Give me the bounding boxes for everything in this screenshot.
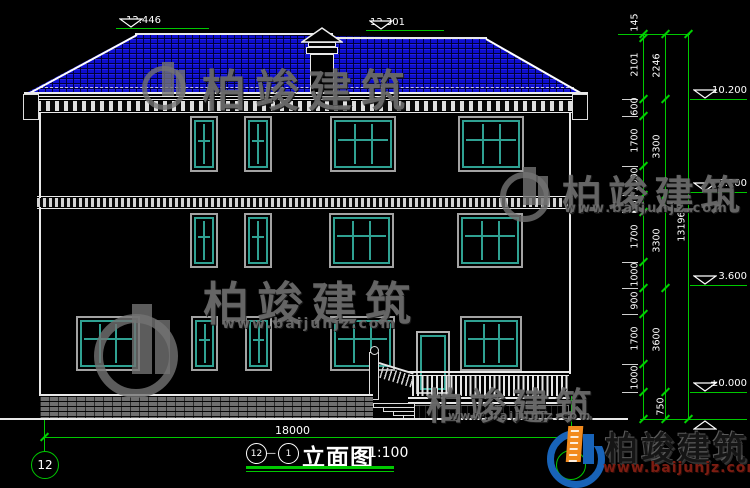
drawing-scale: 1:100 (368, 445, 408, 461)
dimension-label: 900 (630, 281, 641, 321)
elevation-value: 3.600 (667, 271, 747, 282)
roof-ridge-right (331, 37, 487, 39)
elevation-marker-line (690, 285, 747, 286)
dimension-label: 2246 (652, 46, 663, 86)
window (190, 116, 218, 172)
wall-edge-right (569, 112, 571, 374)
title-grid-from: 12 (251, 449, 262, 459)
stair-newel-post (369, 352, 379, 400)
title-separator: — (266, 448, 276, 459)
window (244, 116, 272, 172)
dimension-label: 1700 (630, 217, 641, 257)
dimension-label: 1700 (630, 121, 641, 161)
dimension-label: 1700 (630, 319, 641, 359)
brick-plinth (40, 396, 373, 419)
watermark-url: www.baijunjz.com (222, 316, 397, 332)
watermark-logo-icon (92, 296, 187, 402)
window (457, 213, 523, 268)
dimension-label: 2101 (630, 45, 641, 85)
chimney-cap-icon (301, 27, 343, 43)
cornice-return-left (23, 94, 39, 120)
title-grid-circle-to: 1 (278, 443, 299, 464)
elevation-marker-line (690, 392, 747, 393)
watermark-logo-icon (140, 58, 196, 108)
dimension-label: 3300 (652, 127, 663, 167)
dimension-label: 145 (630, 3, 641, 43)
balustrade-top-rail (408, 371, 569, 373)
newel-ball-finial (370, 346, 379, 355)
cad-elevation-drawing: 1452101600170010006001700100090017001000… (0, 0, 750, 488)
company-logo-icon (545, 420, 603, 484)
title-underline-thin (246, 471, 394, 472)
watermark-url: www.baijunjz.com (564, 201, 729, 216)
cornice-return-right (572, 94, 588, 120)
company-logo: 柏竣建筑 www.baijunjz.com (543, 418, 748, 486)
wall-edge-left (39, 112, 41, 396)
total-width-dimension: 18000 (275, 424, 310, 437)
window (244, 213, 272, 268)
elevation-marker-triangle (369, 20, 393, 30)
elevation-value: ±0.000 (667, 378, 747, 389)
dimension-label: 1000 (630, 358, 641, 398)
title-grid-circle-from: 12 (246, 443, 267, 464)
dimension-label: 3300 (652, 221, 663, 261)
company-logo-url: www.baijunjz.com (603, 460, 750, 476)
elevation-marker-triangle (119, 18, 143, 28)
window (330, 116, 396, 172)
title-underline (246, 466, 394, 469)
window (329, 213, 394, 268)
watermark-brand: 柏竣建筑 (202, 55, 414, 119)
elevation-value: 10.200 (667, 85, 747, 96)
grid-bubble-left: 12 (31, 451, 59, 479)
elevation-marker-line (116, 28, 209, 29)
floor-band-bottom-line (37, 208, 573, 209)
watermark-logo-icon (498, 162, 558, 218)
elevation-marker-line (690, 99, 747, 100)
elevation-marker-line (366, 30, 444, 31)
dimension-label: 3600 (652, 320, 663, 360)
chimney-band (306, 47, 338, 54)
floor-band-top-line (37, 196, 573, 197)
floor-band-dentils (37, 198, 573, 207)
window (190, 213, 218, 268)
dimension-chain-line (665, 34, 666, 419)
grid-bubble-label: 12 (37, 458, 52, 472)
title-grid-to: 1 (286, 449, 292, 459)
window (460, 316, 522, 371)
